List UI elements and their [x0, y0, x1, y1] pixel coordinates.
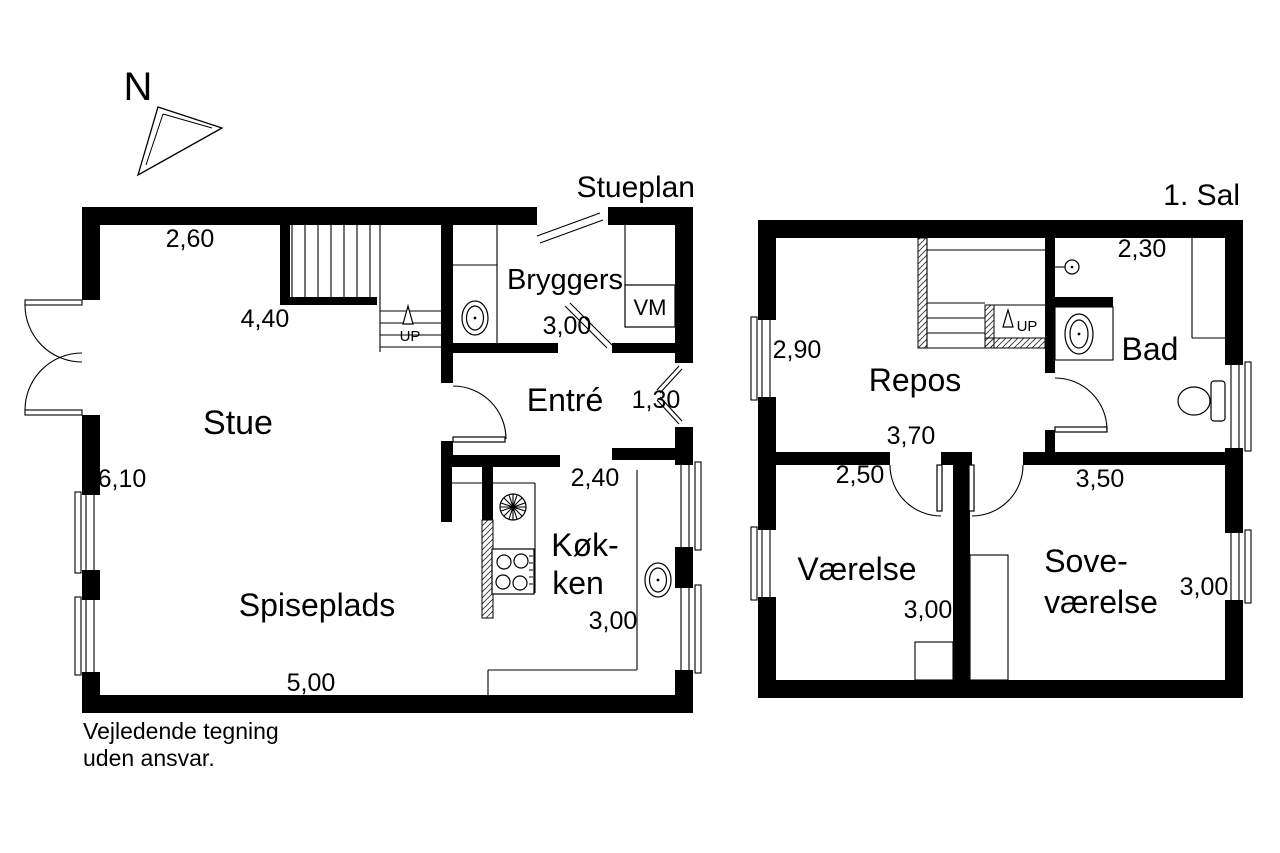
up-arrow-icon [1003, 310, 1013, 327]
dim-vaerelse-depth: 3,00 [904, 596, 953, 624]
room-label-sovevaerelse-1: Sove- [1044, 543, 1128, 579]
dim-stue-width: 4,40 [241, 305, 290, 333]
disclaimer-note: Vejledende tegning uden ansvar. [83, 718, 279, 771]
north-label: N [124, 65, 153, 109]
dim-front-door: 1,30 [632, 386, 681, 414]
north-arrow-icon [138, 107, 222, 175]
room-label-entre: Entré [527, 382, 603, 418]
stairs-up-label: UP [400, 328, 421, 345]
floor-plan-drawing: N Stueplan UP [0, 0, 1280, 853]
note-line-2: uden ansvar. [83, 745, 215, 771]
room-label-sovevaerelse-2: værelse [1044, 584, 1158, 620]
first-floor-title: 1. Sal [1163, 179, 1240, 212]
first-floor-walls [758, 220, 1243, 698]
dim-kokken-depth: 3,00 [589, 607, 638, 635]
dim-sovevaerelse-depth: 3,00 [1180, 573, 1229, 601]
room-label-spiseplads: Spiseplads [239, 587, 396, 623]
dim-ff-left-wall: 2,90 [773, 336, 822, 364]
sovevaerelse-door-arc [972, 465, 1023, 516]
dim-kokken-width: 2,40 [571, 464, 620, 492]
toilet-tank [1211, 381, 1225, 421]
room-label-repos: Repos [869, 362, 962, 398]
entry-door-leaf [537, 213, 603, 243]
north-arrow: N [124, 65, 222, 175]
toilet [1178, 387, 1210, 415]
shower-corner [1192, 230, 1225, 338]
vaerelse-door-leaf [937, 465, 942, 511]
dim-vaerelse-width: 2,50 [836, 461, 885, 489]
dim-repos-width: 3,70 [887, 422, 936, 450]
room-label-stue: Stue [203, 404, 273, 442]
up-arrow-icon [403, 306, 413, 324]
stairs-up-label: UP [1017, 318, 1038, 335]
room-label-kokken-2: ken [552, 565, 604, 601]
dim-bad-width: 2,30 [1118, 235, 1167, 263]
dim-left-wall: 6,10 [98, 465, 147, 493]
ground-floor-title: Stueplan [577, 171, 695, 204]
dim-bryggers-width: 3,00 [543, 312, 592, 340]
vaerelse-door-arc [890, 465, 941, 516]
dim-bottom-wall: 5,00 [287, 669, 336, 697]
dim-sovevaerelse-width: 3,50 [1076, 465, 1125, 493]
room-label-vaerelse: Værelse [797, 551, 916, 587]
french-door [25, 300, 82, 415]
sovevaerelse-door-leaf [969, 465, 974, 511]
windows-ground [75, 462, 701, 675]
bad-door-leaf [1055, 427, 1107, 432]
washing-machine-label: VM [634, 295, 667, 320]
room-label-kokken-1: Køk- [551, 527, 619, 563]
bad-door-arc [1055, 378, 1107, 430]
chimney [482, 520, 493, 618]
vaerelse-closet [915, 642, 953, 680]
stue-door-leaf [453, 437, 505, 442]
room-label-bad: Bad [1122, 331, 1179, 367]
note-line-1: Vejledende tegning [83, 718, 279, 744]
sovevaerelse-closet [970, 555, 1008, 680]
stue-door-arc [453, 386, 506, 439]
staircase-first: UP [918, 238, 1045, 348]
room-label-bryggers: Bryggers [507, 264, 623, 296]
dim-top-wall: 2,60 [166, 225, 215, 253]
